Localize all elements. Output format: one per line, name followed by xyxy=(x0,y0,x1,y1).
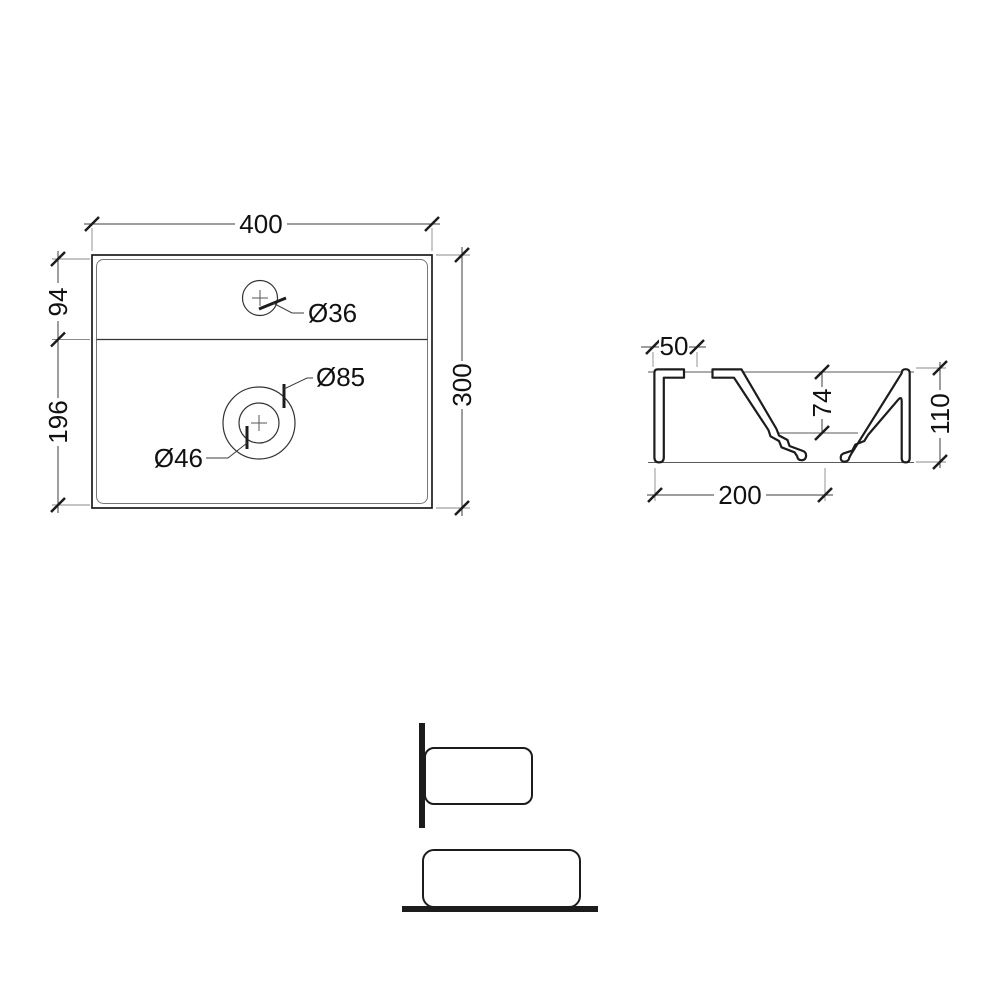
drain-outer-label: Ø85 xyxy=(316,362,365,392)
dim-bowl-depth: 74 xyxy=(807,365,837,440)
section-bowl-left-profile xyxy=(713,369,807,460)
leader-line xyxy=(273,303,304,313)
basin-side-silhouette xyxy=(425,748,532,804)
dim-rim-width: 50 xyxy=(641,331,706,367)
dimension-value: 74 xyxy=(807,389,837,418)
dim-overall-depth: 300 xyxy=(447,247,477,516)
top-view: 400 94 196 300 xyxy=(43,209,477,516)
drain-inner-label: Ø46 xyxy=(154,443,203,473)
side-view xyxy=(419,723,532,828)
section-bowl-right-profile xyxy=(841,369,910,462)
section-left-wall-profile xyxy=(654,369,684,462)
basin-inner-rim xyxy=(97,260,428,504)
basin-outline xyxy=(92,255,432,508)
dimension-value: 196 xyxy=(43,400,73,443)
basin-front-silhouette xyxy=(423,850,580,907)
section-view: 50 74 110 200 xyxy=(641,331,955,510)
faucet-hole: Ø36 xyxy=(243,281,358,329)
dim-overall-width: 400 xyxy=(84,209,440,239)
faucet-hole-label: Ø36 xyxy=(308,298,357,328)
dimension-value: 200 xyxy=(718,480,761,510)
dimension-value: 300 xyxy=(447,363,477,406)
drawing-page: 400 94 196 300 xyxy=(0,0,1000,1000)
leader-line xyxy=(206,443,247,458)
dim-bowl-width: 200 xyxy=(647,468,833,510)
front-view xyxy=(402,850,598,912)
technical-drawing-canvas: 400 94 196 300 xyxy=(0,0,1000,1000)
dimension-value: 50 xyxy=(660,331,689,361)
countertop-line xyxy=(402,906,598,912)
leader-line xyxy=(284,378,313,389)
drain: Ø85 Ø46 xyxy=(154,362,365,473)
dimension-value: 400 xyxy=(239,209,282,239)
dim-overall-height: 110 xyxy=(916,361,955,469)
dimension-value: 110 xyxy=(925,393,955,434)
dim-back-depth: 94 196 xyxy=(43,251,73,513)
dimension-value: 94 xyxy=(43,288,73,317)
